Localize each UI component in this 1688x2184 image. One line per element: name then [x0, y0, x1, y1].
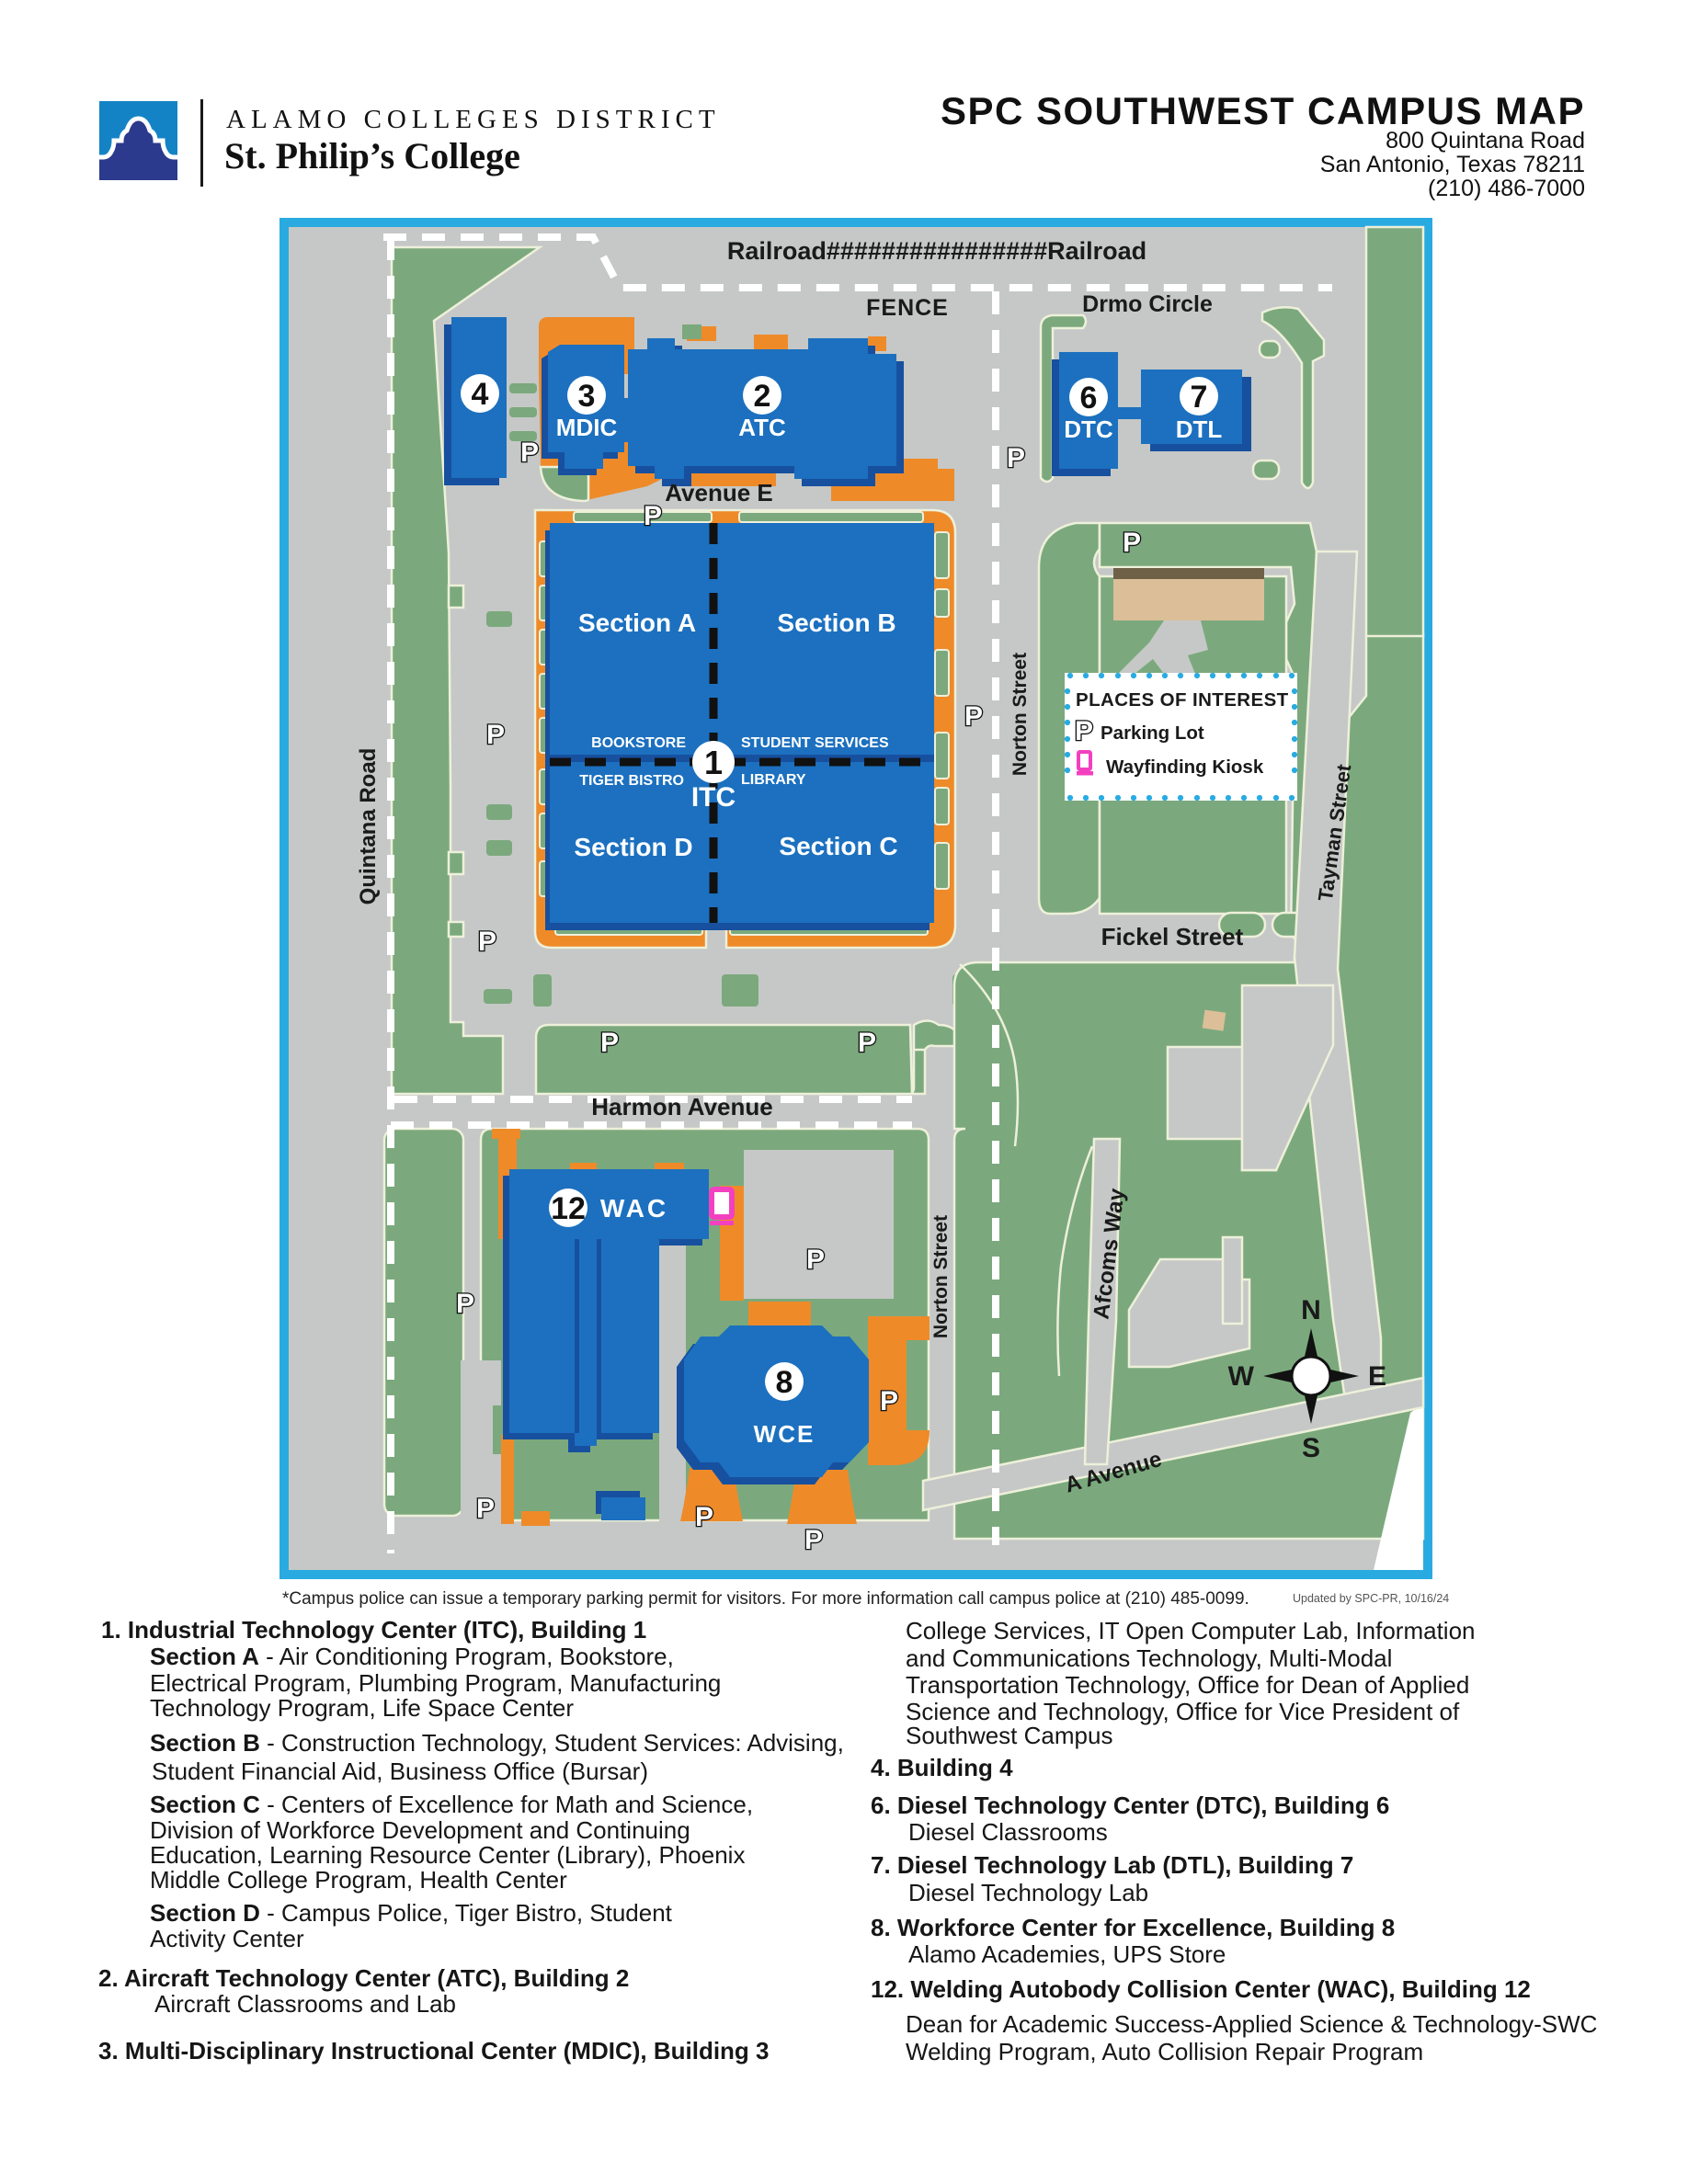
svg-text:6: 6	[1080, 381, 1098, 415]
svg-text:P: P	[695, 1502, 713, 1532]
svg-text:3: 3	[578, 379, 596, 414]
svg-text:Avenue E: Avenue E	[665, 479, 773, 506]
svg-text:P: P	[600, 1028, 619, 1058]
svg-text:DTL: DTL	[1176, 415, 1223, 443]
svg-text:Quintana Road: Quintana Road	[356, 748, 381, 905]
svg-text:P: P	[804, 1525, 823, 1555]
svg-text:ATC: ATC	[738, 414, 786, 441]
svg-text:Railroad################Railro: Railroad################Railroad	[727, 237, 1146, 265]
svg-text:P: P	[520, 438, 539, 468]
svg-text:1: 1	[704, 744, 723, 781]
svg-text:WCE: WCE	[754, 1420, 815, 1448]
svg-text:Parking Lot: Parking Lot	[1101, 722, 1204, 744]
svg-text:W: W	[1228, 1361, 1255, 1392]
svg-text:P: P	[964, 701, 983, 732]
svg-text:Section D: Section D	[574, 833, 692, 861]
svg-text:P: P	[1007, 443, 1025, 473]
svg-text:P: P	[1123, 528, 1141, 558]
svg-text:Wayfinding Kiosk: Wayfinding Kiosk	[1106, 756, 1264, 778]
svg-text:Section B: Section B	[777, 609, 895, 637]
svg-text:TIGER BISTRO: TIGER BISTRO	[579, 773, 684, 789]
svg-text:P: P	[476, 1494, 495, 1524]
svg-text:7: 7	[1191, 380, 1208, 415]
svg-text:S: S	[1302, 1433, 1320, 1463]
svg-text:P: P	[478, 927, 496, 957]
svg-text:12: 12	[551, 1191, 586, 1226]
svg-text:4: 4	[472, 377, 489, 412]
svg-text:N: N	[1301, 1295, 1321, 1325]
svg-text:2: 2	[754, 379, 771, 414]
svg-text:Fickel Street: Fickel Street	[1101, 923, 1244, 950]
svg-text:DTC: DTC	[1064, 415, 1113, 443]
svg-text:Section C: Section C	[779, 832, 897, 860]
svg-text:Section A: Section A	[578, 609, 696, 637]
svg-text:WAC: WAC	[600, 1194, 668, 1223]
svg-text:Norton Street: Norton Street	[930, 1215, 952, 1338]
svg-text:P: P	[858, 1028, 876, 1058]
svg-text:P: P	[644, 501, 662, 531]
svg-text:P: P	[1075, 716, 1093, 746]
svg-text:FENCE: FENCE	[866, 295, 949, 321]
svg-text:STUDENT SERVICES: STUDENT SERVICES	[741, 735, 889, 751]
svg-text:LIBRARY: LIBRARY	[741, 772, 806, 788]
svg-text:P: P	[806, 1245, 825, 1275]
svg-text:P: P	[880, 1386, 898, 1416]
svg-text:Norton Street: Norton Street	[1009, 653, 1031, 776]
svg-text:P: P	[486, 720, 505, 750]
svg-text:PLACES OF INTEREST: PLACES OF INTEREST	[1076, 689, 1289, 711]
svg-text:Harmon Avenue: Harmon Avenue	[591, 1093, 772, 1120]
svg-text:8: 8	[776, 1365, 793, 1400]
svg-text:P: P	[456, 1289, 474, 1319]
svg-text:ITC: ITC	[691, 782, 736, 813]
svg-text:BOOKSTORE: BOOKSTORE	[591, 735, 686, 751]
svg-text:Drmo Circle: Drmo Circle	[1082, 291, 1213, 317]
svg-text:MDIC: MDIC	[556, 414, 618, 441]
svg-text:E: E	[1368, 1361, 1386, 1392]
